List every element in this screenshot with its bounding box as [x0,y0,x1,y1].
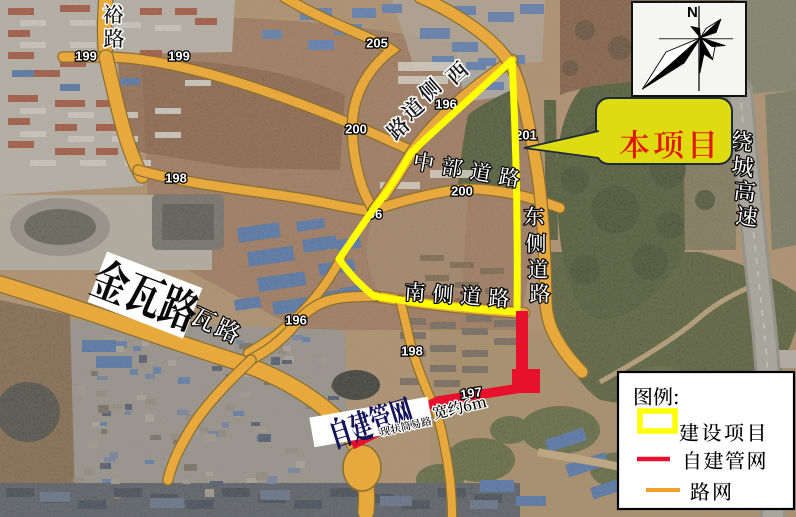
svg-text:198: 198 [165,171,187,186]
svg-text:200: 200 [451,184,473,199]
svg-text:199: 199 [75,49,97,64]
svg-text:196: 196 [285,313,307,328]
svg-text:205: 205 [366,36,388,51]
svg-text:199: 199 [168,49,190,64]
svg-text:200: 200 [345,122,367,137]
svg-text:198: 198 [401,344,423,359]
svg-text:N: N [687,4,698,21]
svg-text:197: 197 [459,384,483,402]
